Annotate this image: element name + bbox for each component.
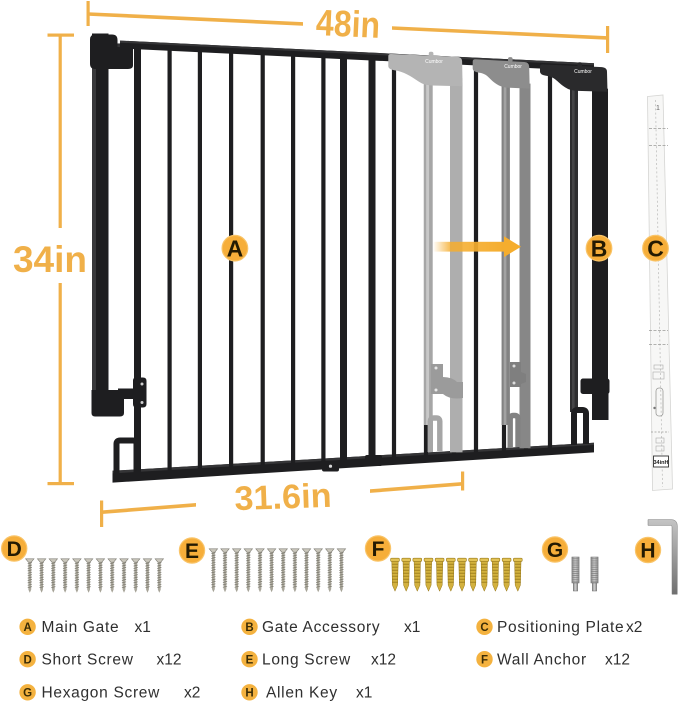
svg-text:D: D [23,654,31,666]
svg-text:x12: x12 [157,652,182,669]
svg-text:48in: 48in [315,2,381,46]
svg-text:Wall Anchor: Wall Anchor [497,652,587,669]
svg-text:Allen Key: Allen Key [266,685,338,702]
svg-text:x1: x1 [356,685,372,702]
svg-text:Long Screw: Long Screw [262,652,351,669]
svg-text:Hexagon Screw: Hexagon Screw [42,685,161,702]
svg-text:Gate Accessory: Gate Accessory [262,619,380,636]
svg-text:Cumbor: Cumbor [425,59,443,65]
svg-text:H: H [245,687,253,699]
svg-text:Cumbor: Cumbor [504,64,522,70]
svg-text:x2: x2 [626,619,642,636]
svg-text:Main Gate: Main Gate [42,619,120,636]
svg-text:A: A [227,235,244,261]
svg-text:34in: 34in [13,239,87,280]
svg-text:x1: x1 [135,619,151,636]
svg-text:1: 1 [656,105,660,112]
svg-text:F: F [372,538,385,561]
svg-text:C: C [480,622,488,634]
svg-text:x12: x12 [371,652,396,669]
svg-text:E: E [246,654,254,666]
svg-text:G: G [547,539,563,562]
svg-text:H: H [640,540,655,563]
svg-text:34inH: 34inH [654,460,669,466]
svg-text:B: B [591,235,608,261]
svg-text:G: G [23,687,32,699]
svg-text:C: C [647,235,664,261]
svg-text:x2: x2 [184,685,200,702]
svg-text:B: B [245,622,253,634]
svg-text:E: E [185,540,199,563]
svg-text:x1: x1 [404,619,420,636]
svg-text:x12: x12 [605,652,630,669]
svg-text:Short Screw: Short Screw [42,652,134,669]
svg-text:F: F [481,654,488,666]
svg-text:A: A [23,622,31,634]
svg-text:Positioning Plate: Positioning Plate [497,619,624,636]
svg-text:31.6in: 31.6in [234,477,332,518]
svg-text:Cumbor: Cumbor [574,69,592,75]
svg-text:D: D [7,538,22,561]
